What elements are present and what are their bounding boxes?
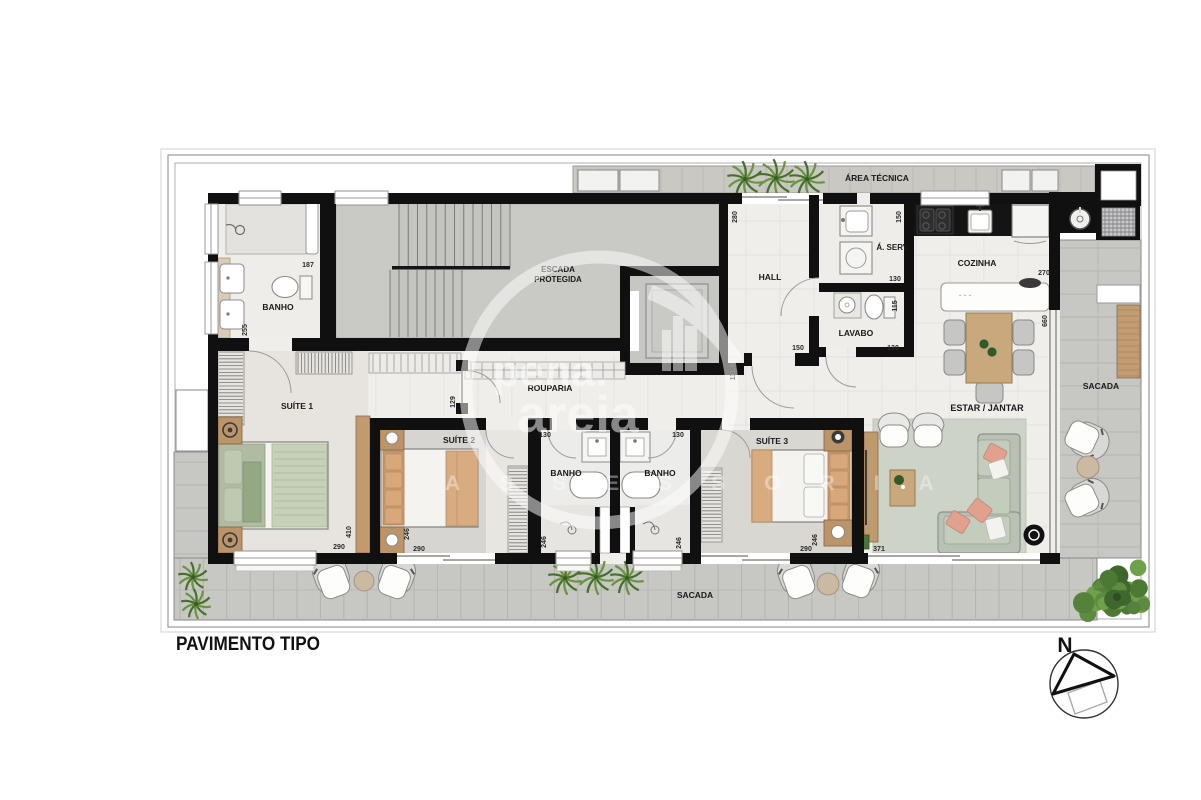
svg-text:areia: areia bbox=[517, 386, 640, 444]
svg-text:280: 280 bbox=[732, 211, 739, 223]
svg-text:SACADA: SACADA bbox=[677, 590, 713, 600]
svg-text:SUÍTE 1: SUÍTE 1 bbox=[281, 401, 313, 411]
svg-text:SUÍTE 3: SUÍTE 3 bbox=[756, 436, 788, 446]
svg-text:246: 246 bbox=[541, 536, 548, 548]
svg-text:150: 150 bbox=[792, 345, 804, 352]
svg-text:LAVABO: LAVABO bbox=[839, 328, 874, 338]
svg-text:SACADA: SACADA bbox=[1083, 381, 1119, 391]
svg-text:115: 115 bbox=[892, 300, 899, 311]
svg-text:255: 255 bbox=[242, 324, 249, 336]
svg-text:PAVIMENTO TIPO: PAVIMENTO TIPO bbox=[176, 634, 320, 655]
svg-text:410: 410 bbox=[346, 526, 353, 538]
svg-text:N: N bbox=[1057, 634, 1072, 657]
svg-text:⌃⌃⌃: ⌃⌃⌃ bbox=[957, 294, 972, 301]
svg-text:660: 660 bbox=[1042, 315, 1049, 327]
svg-text:290: 290 bbox=[333, 544, 345, 551]
svg-text:130: 130 bbox=[672, 432, 684, 439]
svg-text:BANHO: BANHO bbox=[262, 302, 294, 312]
svg-text:ASSESSORIA: ASSESSORIA bbox=[445, 472, 973, 495]
svg-text:371: 371 bbox=[873, 546, 885, 553]
svg-text:130: 130 bbox=[887, 345, 899, 352]
svg-text:130: 130 bbox=[889, 276, 901, 283]
svg-text:290: 290 bbox=[413, 546, 425, 553]
svg-text:246: 246 bbox=[812, 534, 819, 546]
svg-text:ÁREA TÉCNICA: ÁREA TÉCNICA bbox=[845, 173, 909, 183]
svg-text:150: 150 bbox=[896, 211, 903, 223]
svg-text:290: 290 bbox=[800, 546, 812, 553]
svg-text:Á. SERV.: Á. SERV. bbox=[876, 243, 909, 252]
svg-text:COZINHA: COZINHA bbox=[958, 258, 997, 268]
svg-text:270: 270 bbox=[1038, 270, 1050, 277]
svg-text:129: 129 bbox=[450, 396, 457, 408]
svg-text:ESTAR / JANTAR: ESTAR / JANTAR bbox=[950, 403, 1024, 413]
svg-text:246: 246 bbox=[404, 528, 411, 540]
svg-text:HALL: HALL bbox=[759, 272, 782, 282]
svg-text:187: 187 bbox=[302, 262, 314, 269]
svg-text:246: 246 bbox=[676, 537, 683, 549]
